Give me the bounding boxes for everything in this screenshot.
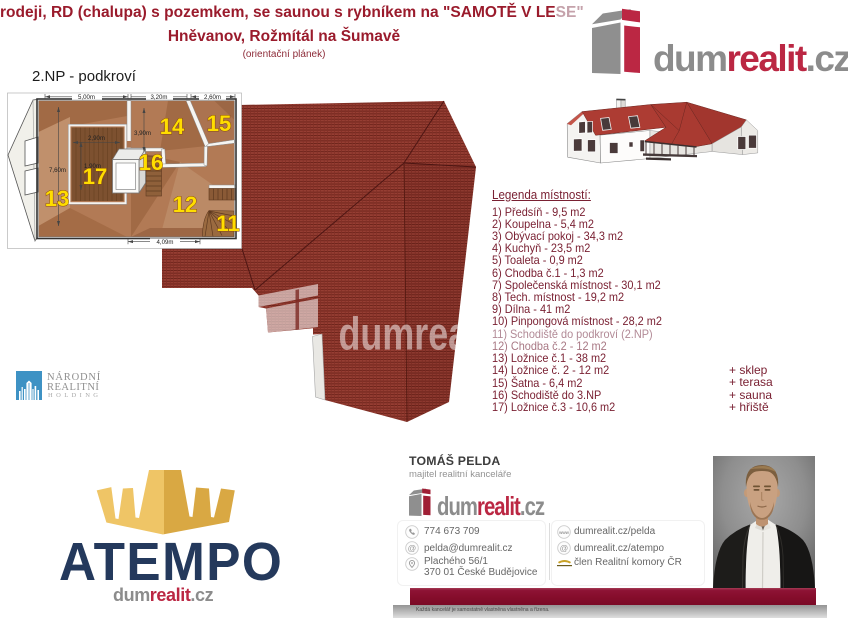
svg-text:dumrealit.cz: dumrealit.cz	[339, 308, 548, 359]
svg-text:12: 12	[173, 192, 197, 217]
svg-text:2,60m: 2,60m	[204, 94, 221, 101]
svg-text:@: @	[408, 543, 417, 553]
svg-text:2,90m: 2,90m	[88, 135, 105, 142]
svg-text:4,09m: 4,09m	[157, 239, 174, 246]
svg-text:13: 13	[45, 186, 69, 211]
svg-text:3,20m: 3,20m	[151, 94, 168, 101]
svg-text:11: 11	[216, 211, 239, 236]
svg-text:14: 14	[160, 114, 185, 139]
svg-text:15: 15	[207, 111, 231, 136]
svg-text:www: www	[558, 530, 570, 535]
svg-text:@: @	[560, 543, 569, 553]
svg-text:5,00m: 5,00m	[78, 94, 95, 101]
svg-text:3,90m: 3,90m	[134, 130, 151, 137]
svg-text:16: 16	[139, 150, 163, 175]
svg-text:17: 17	[83, 164, 107, 189]
svg-text:7,60m: 7,60m	[49, 167, 66, 174]
